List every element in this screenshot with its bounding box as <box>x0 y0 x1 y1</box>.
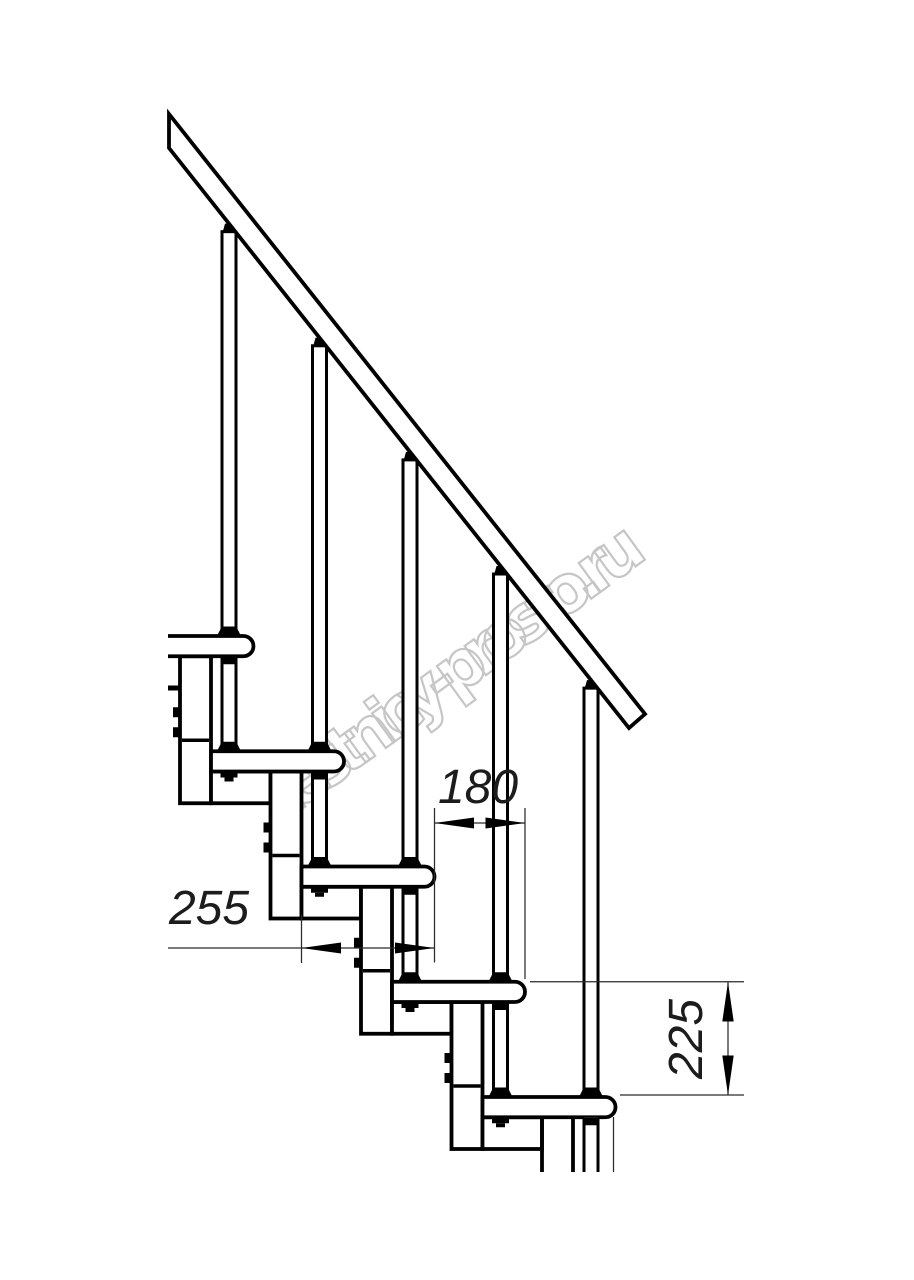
baluster-nut-3 <box>402 1002 419 1008</box>
tread-1 <box>168 636 253 656</box>
baluster-lower-shaft-2 <box>313 772 327 859</box>
baluster-lower-shaft-4 <box>494 1002 508 1089</box>
baluster-lower-shaft-3 <box>403 887 417 974</box>
baluster-nut-tab-1 <box>225 778 234 782</box>
baluster-lower-shaft-1 <box>222 656 236 743</box>
module-foot-3 <box>392 1002 452 1034</box>
baluster-nut-1 <box>221 772 238 778</box>
baluster-nut-tab-3 <box>406 1008 415 1012</box>
baluster-connector-2 <box>311 772 328 780</box>
support-column-4 <box>452 1002 483 1149</box>
baluster-nut-tab-4 <box>496 1123 505 1127</box>
arrowhead-225-bottom <box>722 1056 733 1096</box>
baluster-shaft-5 <box>584 688 598 1089</box>
baluster-nut-4 <box>492 1117 509 1123</box>
tread-4 <box>392 982 525 1002</box>
module-foot-2 <box>302 887 362 919</box>
dimension-label-riser: 225 <box>660 969 714 1109</box>
dimension-label-going: 180 <box>408 761 548 815</box>
baluster-shaft-1 <box>222 232 236 628</box>
baluster-lower-shaft-5 <box>584 1117 598 1172</box>
arrowhead-180-left <box>435 818 475 829</box>
module-foot-1 <box>211 772 271 804</box>
column-clip-a-3 <box>354 938 361 948</box>
module-foot-4 <box>483 1117 543 1149</box>
baluster-nut-tab-2 <box>315 893 324 897</box>
column-clip-b-3 <box>354 958 361 968</box>
column-clip-b-2 <box>264 843 271 853</box>
baluster-connector-4 <box>492 1002 509 1010</box>
baluster-connector-1 <box>221 656 238 664</box>
baluster-nut-2 <box>311 887 328 893</box>
tread-3 <box>302 867 435 887</box>
drawing-layer <box>0 0 914 1280</box>
tread-2 <box>211 751 344 771</box>
arrowhead-225-top <box>722 982 733 1022</box>
tread-5 <box>483 1097 616 1117</box>
baluster-shaft-2 <box>313 346 327 743</box>
staircase-drawing-canvas: lestnicy-prosto.ru 255 180 225 <box>0 0 914 1280</box>
dimension-label-tread-depth: 255 <box>139 882 279 936</box>
column-clip-b-4 <box>445 1073 452 1083</box>
support-column-1 <box>180 656 211 803</box>
arrowhead-255-left <box>302 943 342 954</box>
column-clip-b-1 <box>173 727 180 737</box>
support-column-5 <box>542 1117 573 1172</box>
column-clip-a-1 <box>173 707 180 717</box>
baluster-connector-5 <box>583 1117 600 1125</box>
baluster-connector-3 <box>402 887 419 895</box>
column-clip-a-2 <box>264 823 271 833</box>
column-clip-a-4 <box>445 1053 452 1063</box>
support-column-3 <box>361 887 392 1034</box>
